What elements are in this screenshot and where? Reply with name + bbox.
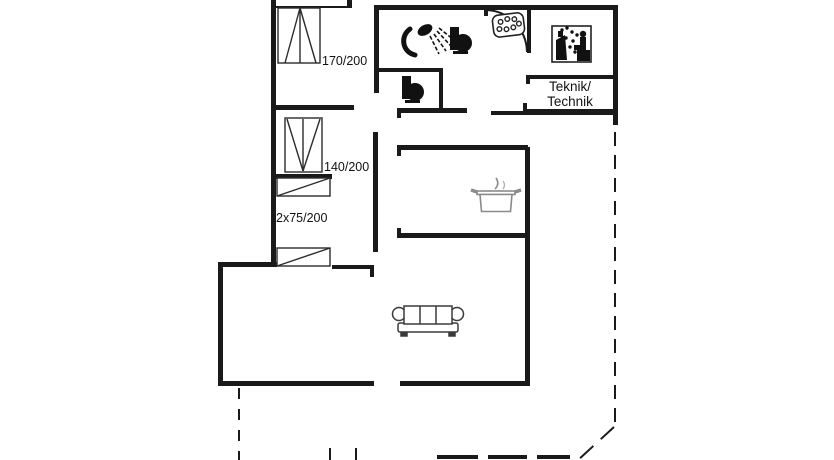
toilet-icon-wc bbox=[402, 76, 424, 103]
wall-bed1-right bbox=[374, 5, 379, 93]
shower-hose bbox=[404, 29, 415, 55]
wall-kitchen-bottom bbox=[397, 233, 528, 238]
cooking-pot-icon bbox=[471, 178, 521, 212]
wall-wc-bottom-tick bbox=[397, 108, 401, 118]
pot-body bbox=[480, 195, 512, 212]
wall-wc-bottom bbox=[397, 108, 467, 113]
pot-handle-left bbox=[471, 190, 477, 192]
bed-size-label-140: 140/200 bbox=[324, 160, 369, 174]
wall-extension-left bbox=[218, 262, 223, 386]
wall-left-outer bbox=[271, 0, 276, 267]
wall-bottom-right bbox=[400, 381, 530, 386]
wall-bed3-bottom-tick bbox=[370, 265, 374, 277]
terrace-dashed-bottom-edge bbox=[437, 455, 570, 459]
wall-utility-bottom-tick bbox=[523, 103, 527, 110]
toilet-icon-bathroom bbox=[450, 27, 472, 54]
utility-room-label-line2: Technik bbox=[528, 94, 612, 109]
bottom-dash-2 bbox=[488, 455, 527, 459]
utility-room-label-line1: Teknik/ bbox=[528, 79, 612, 94]
wall-kitchen-top-tick bbox=[397, 145, 401, 156]
wall-wc-right bbox=[439, 68, 443, 112]
sauna-icon bbox=[552, 26, 591, 62]
toilet-bowl bbox=[406, 83, 424, 101]
bottom-dash-1 bbox=[437, 455, 478, 459]
bunk-size-label: 2x75/200 bbox=[276, 211, 327, 225]
wall-bed1-bottom bbox=[271, 105, 354, 110]
floorplan-canvas: 170/200 140/200 2x75/200 Teknik/ Technik bbox=[0, 0, 834, 460]
pot-handle-right bbox=[515, 190, 521, 192]
wall-extension-top bbox=[218, 262, 277, 267]
sofa-icon bbox=[393, 306, 464, 336]
shower-icon bbox=[404, 22, 454, 55]
bed-size-label-170: 170/200 bbox=[322, 54, 367, 68]
shower-head bbox=[416, 22, 435, 39]
bunk-bed-icon-lower bbox=[277, 248, 330, 266]
wall-wc-top bbox=[374, 68, 443, 72]
sauna-bench bbox=[577, 50, 590, 61]
sauna-person-head bbox=[580, 31, 586, 37]
double-bed-icon-140 bbox=[285, 118, 322, 172]
wall-sauna-partition bbox=[527, 9, 531, 53]
sauna-person-legs bbox=[574, 45, 582, 50]
toilet-bowl bbox=[454, 34, 472, 52]
wall-utility-bottom bbox=[523, 109, 618, 115]
toilet-base bbox=[453, 51, 468, 54]
sofa-cushions bbox=[404, 306, 452, 324]
double-bed-icon-170 bbox=[278, 8, 320, 63]
sauna-heater-top bbox=[558, 31, 563, 37]
wall-bed3-bottom bbox=[332, 265, 374, 269]
bunk-bed-icon-upper bbox=[277, 178, 330, 196]
toilet-base bbox=[405, 100, 420, 103]
wall-kitchen-top bbox=[397, 145, 528, 150]
dashed-corner-diagonal bbox=[577, 427, 614, 460]
wall-bed2-right bbox=[373, 132, 378, 252]
wall-bottom-left bbox=[218, 381, 374, 386]
wall-kitchen-bottom-tick bbox=[397, 228, 401, 238]
wall-kitchen-right bbox=[525, 147, 530, 386]
pot-steam bbox=[495, 178, 498, 189]
whirlpool-bubbles-icon bbox=[492, 12, 525, 38]
bottom-dash-3 bbox=[537, 455, 570, 459]
wall-right-outer bbox=[613, 5, 618, 125]
pot-steam bbox=[503, 181, 505, 189]
wall-top-outer bbox=[374, 5, 618, 10]
floorplan-drawing bbox=[0, 0, 834, 460]
